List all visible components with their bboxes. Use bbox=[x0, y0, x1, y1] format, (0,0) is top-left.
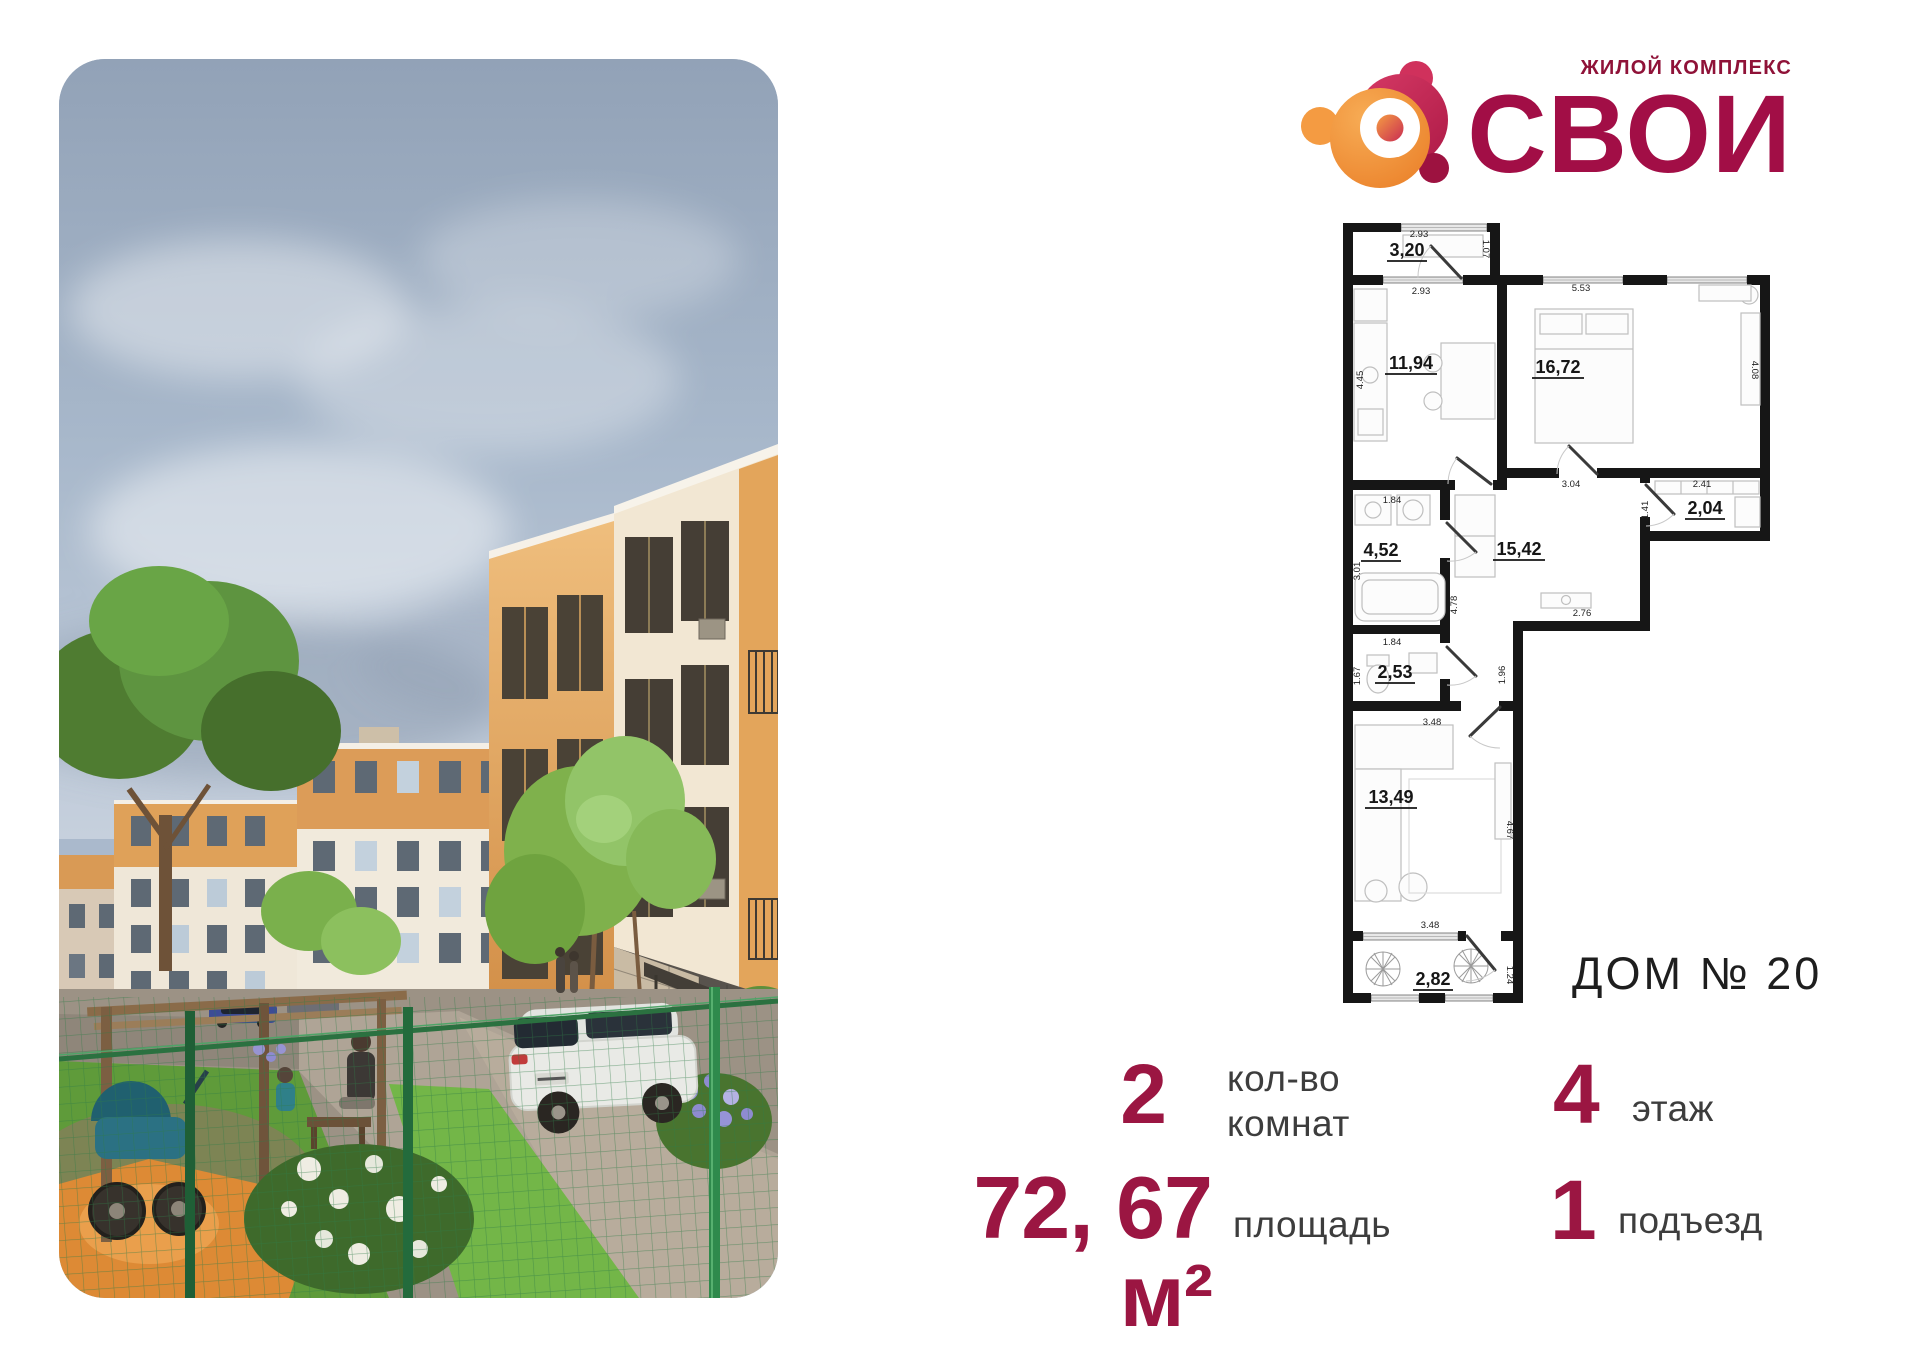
logo: ЖИЛОЙ КОМПЛЕКС СВОИ bbox=[1440, 57, 1792, 185]
entrance-value: 1 bbox=[1550, 1168, 1597, 1252]
dim-kitchen-h: 4.45 bbox=[1355, 371, 1366, 390]
dim-hall-h: 4.78 bbox=[1449, 596, 1460, 615]
floor-label: этаж bbox=[1632, 1086, 1714, 1131]
dim-wc-h: 1.67 bbox=[1352, 667, 1363, 686]
dim-living-h: 4.67 bbox=[1504, 821, 1515, 840]
dim-balcony-top-h: 1.07 bbox=[1480, 240, 1491, 259]
room-area-hall: 15,42 bbox=[1496, 539, 1541, 559]
dim-bedroom-b: 3.04 bbox=[1562, 479, 1581, 490]
dim-balcony-top-w: 2.93 bbox=[1410, 229, 1429, 240]
rooms-count-value: 2 bbox=[1000, 1052, 1167, 1136]
dim-pantry-h: 1.41 bbox=[1640, 501, 1651, 520]
rooms-count-label: кол-во комнат bbox=[1227, 1056, 1432, 1146]
area-label: площадь bbox=[1233, 1202, 1391, 1247]
dim-kitchen-w: 2.93 bbox=[1412, 286, 1431, 297]
dim-bathroom-w: 1.84 bbox=[1383, 495, 1402, 506]
dim-hall-w2: 1.96 bbox=[1497, 666, 1508, 685]
fence bbox=[59, 987, 778, 1298]
dim-living-w: 3.48 bbox=[1423, 717, 1442, 728]
room-area-balcony-bottom: 2,82 bbox=[1415, 969, 1450, 989]
logo-brand-name: СВОИ bbox=[1440, 84, 1792, 185]
dim-pantry-w: 2.41 bbox=[1693, 479, 1712, 490]
dim-bedroom-w: 5.53 bbox=[1572, 283, 1591, 294]
room-area-pantry: 2,04 bbox=[1687, 498, 1722, 518]
house-number-label: ДОМ № 20 bbox=[1572, 948, 1822, 1000]
complex-photo bbox=[59, 59, 778, 1298]
dim-living-b: 3.48 bbox=[1421, 920, 1440, 931]
dim-balcony-bottom-h: 1.24 bbox=[1504, 966, 1515, 985]
dim-bedroom-h: 4.08 bbox=[1749, 361, 1760, 380]
dim-hall-w: 2.76 bbox=[1573, 608, 1592, 619]
logo-mark-icon bbox=[1298, 50, 1458, 210]
dim-bathroom-h: 3.01 bbox=[1352, 562, 1363, 581]
room-area-balcony-top: 3,20 bbox=[1389, 240, 1424, 260]
room-area-bedroom: 16,72 bbox=[1535, 357, 1580, 377]
entrance-label: подъезд bbox=[1618, 1198, 1763, 1243]
furniture bbox=[1354, 235, 1760, 902]
floor-plan: 3,20 11,94 16,72 2,04 4,52 15,42 2,53 13… bbox=[1343, 223, 1770, 1005]
room-area-wc: 2,53 bbox=[1377, 662, 1412, 682]
room-area-living: 13,49 bbox=[1368, 787, 1413, 807]
room-area-bathroom: 4,52 bbox=[1363, 540, 1398, 560]
listing-card: ЖИЛОЙ КОМПЛЕКС СВОИ bbox=[0, 0, 1920, 1358]
area-value: 72, 67 м² bbox=[878, 1164, 1212, 1340]
dim-wc-w: 1.84 bbox=[1383, 637, 1402, 648]
room-area-kitchen: 11,94 bbox=[1389, 353, 1433, 373]
floor-value: 4 bbox=[1553, 1052, 1600, 1136]
